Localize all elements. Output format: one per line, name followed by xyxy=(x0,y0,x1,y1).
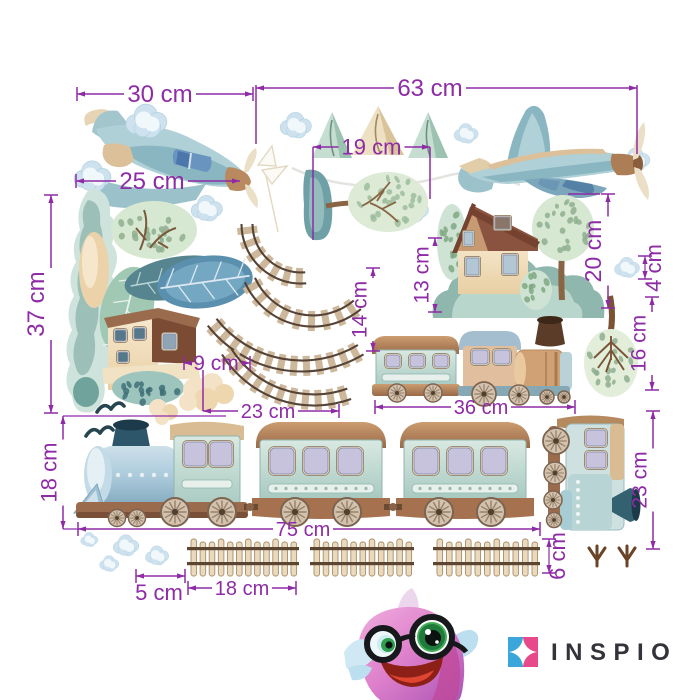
svg-text:6 cm: 6 cm xyxy=(545,532,570,580)
svg-text:75 cm: 75 cm xyxy=(276,519,330,541)
svg-text:18 cm: 18 cm xyxy=(215,578,269,600)
svg-text:13 cm: 13 cm xyxy=(411,246,434,303)
svg-text:INSPIO: INSPIO xyxy=(551,639,677,666)
svg-text:20 cm: 20 cm xyxy=(580,220,606,283)
svg-text:37 cm: 37 cm xyxy=(23,271,50,336)
svg-text:14 cm: 14 cm xyxy=(349,281,372,338)
svg-text:9 cm: 9 cm xyxy=(193,352,239,375)
svg-text:23 cm: 23 cm xyxy=(241,401,295,423)
svg-text:19 cm: 19 cm xyxy=(342,134,402,159)
svg-text:4 cm: 4 cm xyxy=(641,244,666,292)
svg-text:25 cm: 25 cm xyxy=(119,168,184,195)
svg-text:63 cm: 63 cm xyxy=(397,75,462,102)
svg-text:36 cm: 36 cm xyxy=(454,397,508,419)
svg-text:30 cm: 30 cm xyxy=(127,81,192,108)
svg-text:18 cm: 18 cm xyxy=(36,443,61,503)
svg-text:16 cm: 16 cm xyxy=(628,315,651,372)
svg-text:5 cm: 5 cm xyxy=(135,580,183,605)
svg-text:23 cm: 23 cm xyxy=(629,451,652,508)
